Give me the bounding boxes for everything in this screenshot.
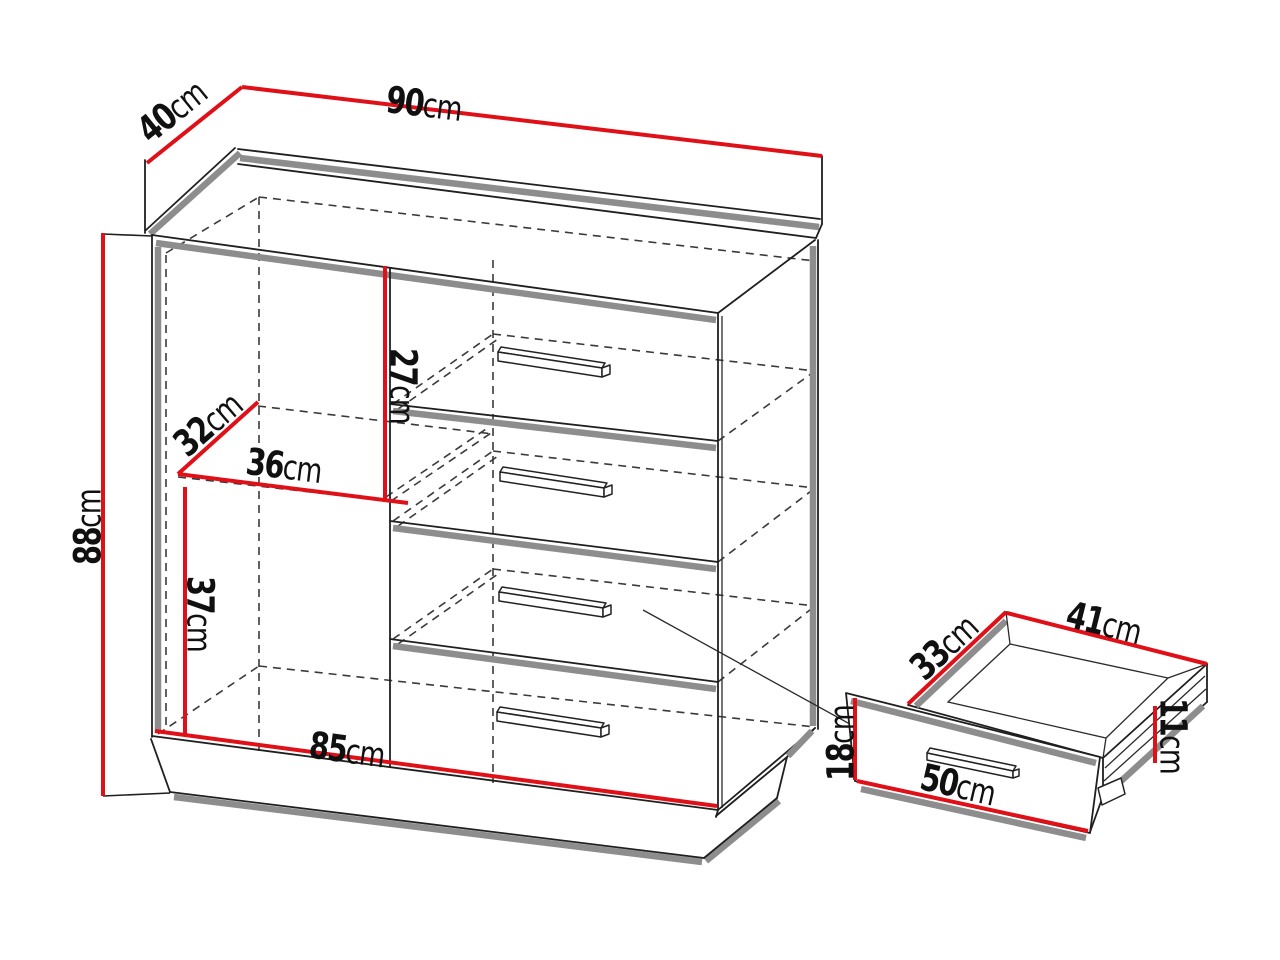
drawer-handle-3 (499, 587, 611, 617)
dimension-diagram: 90cm 40cm 88cm 27cm 32cm 36cm 37cm 85cm … (0, 0, 1280, 960)
dim-line-width-90 (242, 87, 822, 156)
dim-label-drawer-front-height: 18cm (823, 705, 860, 781)
dim-label-lower-compartment-height: 37cm (182, 576, 219, 652)
dim-label-width: 90cm (384, 81, 464, 127)
dim-label-height: 88cm (70, 489, 107, 565)
drawer-separator-3 (390, 639, 718, 682)
cabinet-top-panel (145, 148, 822, 238)
cabinet-hidden-lines (158, 197, 815, 783)
line-drawing (0, 0, 1280, 960)
cabinet-drawer-fronts (390, 347, 718, 737)
drawer-runner-foot (1098, 778, 1125, 805)
drawer-handle-4 (497, 707, 609, 737)
drawer-separator-1 (390, 404, 718, 441)
cabinet-drawing (103, 87, 822, 862)
dim-label-drawer-side-height: 11cm (1155, 698, 1192, 774)
drawer-handle-2 (500, 467, 612, 497)
drawer-separator-2 (390, 521, 718, 562)
dim-label-shelf-width: 36cm (244, 443, 324, 489)
dim-label-top-drawer-height: 27cm (385, 348, 422, 424)
drawer-handle-1 (498, 347, 610, 377)
dim-line-85 (155, 731, 717, 806)
cabinet-body (152, 235, 818, 810)
